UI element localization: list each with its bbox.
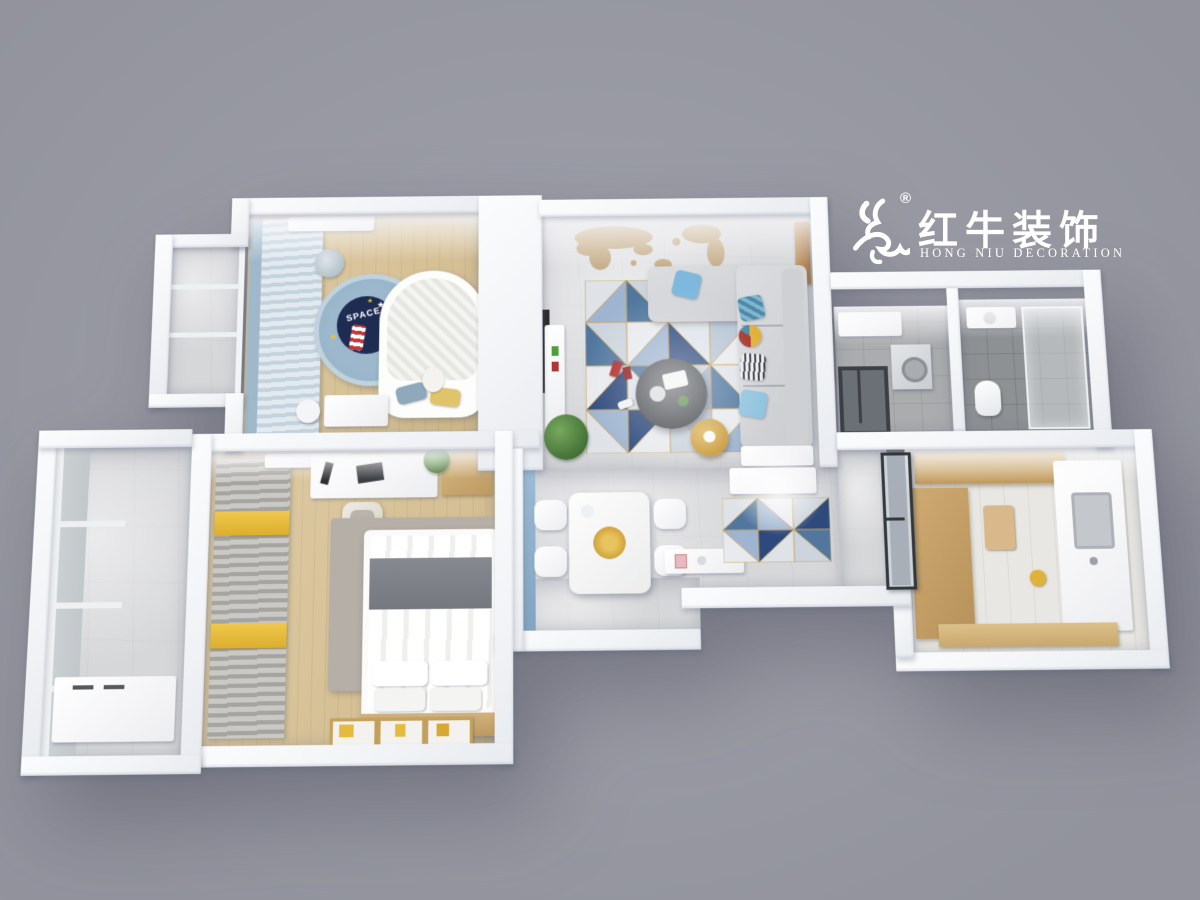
wall-segment [38,429,192,448]
dining-chair [653,499,686,530]
sofa-pillow-round [738,325,761,347]
dining-plate [581,505,594,518]
balcony-mullion [52,521,125,528]
kitchen-sliding-glass-door [880,452,917,589]
wall-segment [194,430,540,451]
cabinet-vent [73,685,94,689]
bay-window-mullion [169,332,239,338]
window-mullion [857,370,862,423]
wall-segment [837,429,1154,450]
master-bed-pillow [374,688,426,712]
bay-window-mullion [171,284,240,289]
glass-door-frame-bar [886,517,904,520]
kitchen-counter-right [1053,460,1134,631]
wall-segment [232,195,518,215]
curtain-yellow-band [214,511,290,536]
balcony-cabinet [51,676,176,743]
gold-side-table [690,419,729,457]
fruit-bowl [1029,570,1046,587]
desk-laptop [356,462,384,484]
dining-plate [624,567,637,580]
kitchen-base-cabinets [938,622,1119,647]
wall-segment [182,743,513,768]
laundry-window [838,366,891,435]
kitchen-faucet [1089,557,1098,565]
desk-lamp [320,462,334,485]
console-bowl [697,556,706,565]
kids-bay-window-floor [167,240,242,394]
brand-watermark: ® 红牛装饰 HONG NIU DECORATION [848,190,1128,280]
master-bed-pillow [432,660,488,686]
wall-segment [495,431,514,765]
kitchen-upper-cabinets [914,451,1067,484]
curtain-yellow-band [210,623,287,649]
master-bed-throw [369,557,492,609]
shoe-cabinet [729,467,816,494]
washer-door [901,357,928,383]
star-icon: ★ [367,297,373,305]
dining-chair [534,546,567,577]
wall-segment [495,629,701,652]
kids-bed-duvet [387,278,479,381]
shower-glass-enclosure [1021,306,1091,429]
sofa-pillow-teal [737,294,766,322]
frame-artwork [437,723,450,736]
console-decor-green [552,346,559,356]
wall-segment [895,650,1170,672]
sofa-pillow-lightblue [738,389,769,419]
coffee-table-book [662,370,689,390]
wall-segment [513,448,523,651]
master-curtain [207,459,291,739]
dining-table [569,492,651,594]
kitchen-counter-left [909,488,976,639]
wall-segment [20,755,201,776]
sofa-pillow-blue [671,269,703,300]
master-bed [361,529,498,737]
kids-desk [324,395,389,427]
entry-rug [722,497,831,563]
dining-chair [534,500,567,531]
master-desk [310,453,438,498]
kids-ac-unit [288,216,374,231]
washing-machine [891,344,933,389]
sofa-backrest [781,269,809,444]
scene: SPACE ★ ★ ★ ✦ [0,0,1200,900]
master-bed-pillow [372,661,428,687]
registered-mark: ® [900,190,911,207]
sofa-end-table [741,445,814,466]
kids-rug-flame: ✦ [329,331,338,344]
console-decor-red [552,362,559,372]
cutting-board [983,505,1016,550]
bathroom-vanity [966,307,1017,329]
master-bed-pillow [429,687,481,711]
kids-rug-rocket [349,324,367,351]
coffee-table-plant [678,395,689,406]
balcony-mullion [48,602,122,609]
sofa-seam [743,385,785,387]
dining-centerpiece-flowers [593,526,626,559]
brand-name-english: HONG NIU DECORATION [920,246,1125,261]
dining-blue-accent-wall [523,470,536,631]
wall-segment [478,195,543,471]
cabinet-vent [104,685,125,689]
bathroom-sink [983,312,997,325]
kitchen-sink [1071,492,1115,549]
frame-artwork [395,724,406,737]
coffee-table-vase [649,386,665,402]
side-table-cup [703,431,715,443]
frame-artwork [339,725,354,738]
wall-segment [681,585,911,608]
sofa-pillow-zigzag [740,353,767,381]
laundry-counter [838,312,902,337]
toilet [974,381,1002,417]
console-frame-decor [675,554,687,568]
kids-bed [378,270,486,418]
wall-segment [539,197,828,217]
